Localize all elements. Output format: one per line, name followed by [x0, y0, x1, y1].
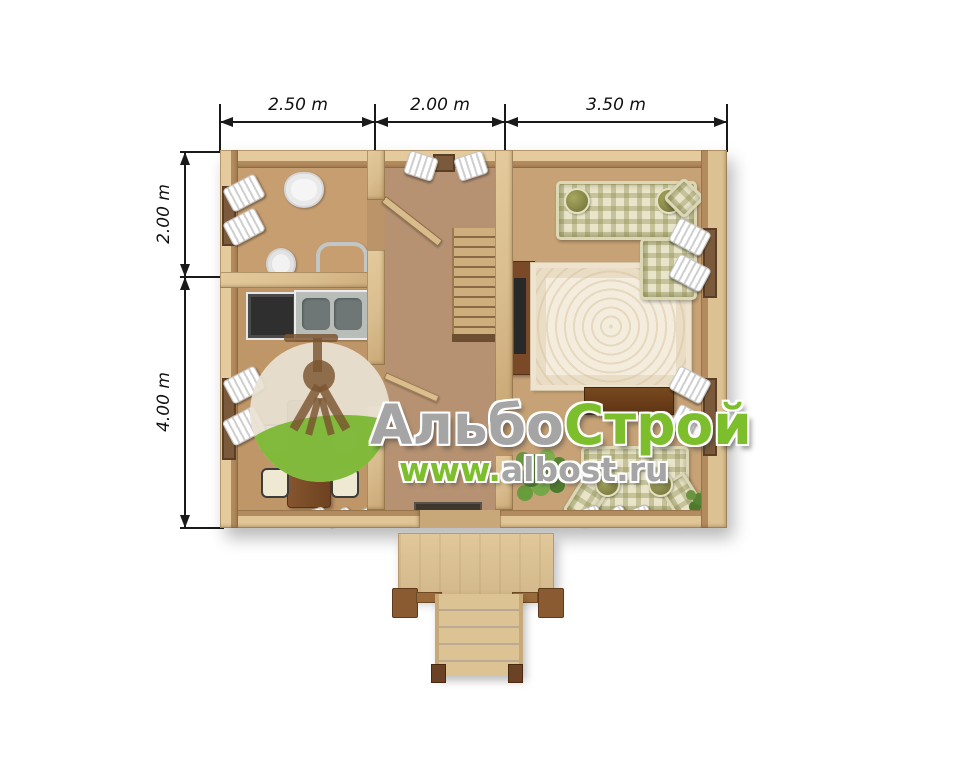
dimension-tick [374, 104, 376, 152]
compass-icon [284, 334, 338, 342]
arrowhead-icon [180, 264, 190, 277]
arrowhead-icon [180, 515, 190, 528]
dimension-tick [504, 104, 506, 152]
kitchen-sink-icon [294, 290, 372, 340]
dimension-line-top-2 [376, 121, 504, 123]
wall-bottom-left [220, 510, 420, 528]
porch-platform [398, 533, 554, 595]
arrowhead-icon [220, 117, 233, 127]
dimension-line-left-2 [184, 278, 186, 527]
wash-basin-icon [284, 172, 324, 208]
dimension-tick [726, 104, 728, 152]
floor-plan-image: 2.50 m 2.00 m 3.50 m 2.00 m 4.00 m [0, 0, 964, 783]
wall-right [701, 150, 727, 528]
arrowhead-icon [505, 117, 518, 127]
dimension-label-height-2: 4.00 m [154, 366, 174, 438]
url-part-1: www. [399, 450, 501, 489]
porch-step-foot [431, 664, 446, 683]
dimension-tick [219, 104, 221, 152]
dimension-line-top-1 [221, 121, 374, 123]
url-part-2: albost.ru [501, 450, 669, 489]
arrowhead-icon [492, 117, 505, 127]
wall-hall-west-upper [367, 150, 385, 200]
arrowhead-icon [180, 152, 190, 165]
brand-part-1: Альбо [370, 393, 564, 457]
potted-plant-icon [686, 490, 696, 500]
sink-basin-icon [302, 298, 330, 330]
watermark-logo-green-half [250, 410, 390, 482]
porch-post [392, 588, 418, 618]
wall-bottom-right [500, 510, 727, 528]
watermark-brand-text: АльбоСтрой [370, 396, 752, 454]
dimension-line-left-1 [184, 153, 186, 276]
dimension-label-height-1: 2.00 m [154, 178, 174, 250]
wall-hall-west-middle [367, 250, 385, 365]
watermark-url-text: www.albost.ru [399, 452, 669, 488]
dimension-line-top-3 [506, 121, 726, 123]
porch-step-foot [508, 664, 523, 683]
arrowhead-icon [362, 117, 375, 127]
porch-post [538, 588, 564, 618]
staircase-edge [452, 334, 498, 342]
dimension-label-width-2: 2.00 m [392, 95, 488, 115]
tv-icon [514, 278, 526, 354]
entrance-threshold [420, 510, 500, 528]
round-pillow-icon [564, 188, 590, 214]
arrowhead-icon [375, 117, 388, 127]
dimension-label-width-1: 2.50 m [250, 95, 346, 115]
brand-part-2: Строй [564, 393, 752, 457]
wall-hall-east-upper [495, 150, 513, 405]
sink-basin-icon [334, 298, 362, 330]
stove-icon [246, 292, 298, 340]
wall-bathroom-kitchen [220, 272, 385, 288]
dimension-label-width-3: 3.50 m [568, 95, 664, 115]
arrowhead-icon [180, 277, 190, 290]
arrowhead-icon [714, 117, 727, 127]
